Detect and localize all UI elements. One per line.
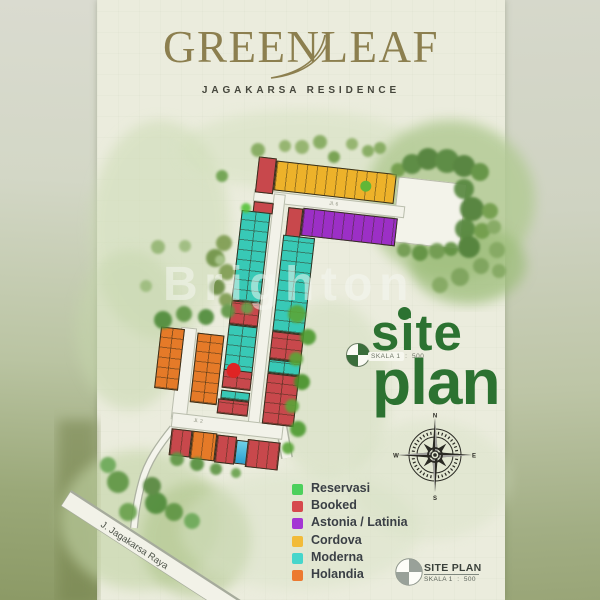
svg-text:N: N [433,414,437,420]
svg-text:S: S [433,496,437,502]
svg-text:E: E [472,454,476,460]
svg-text:W: W [393,454,399,460]
